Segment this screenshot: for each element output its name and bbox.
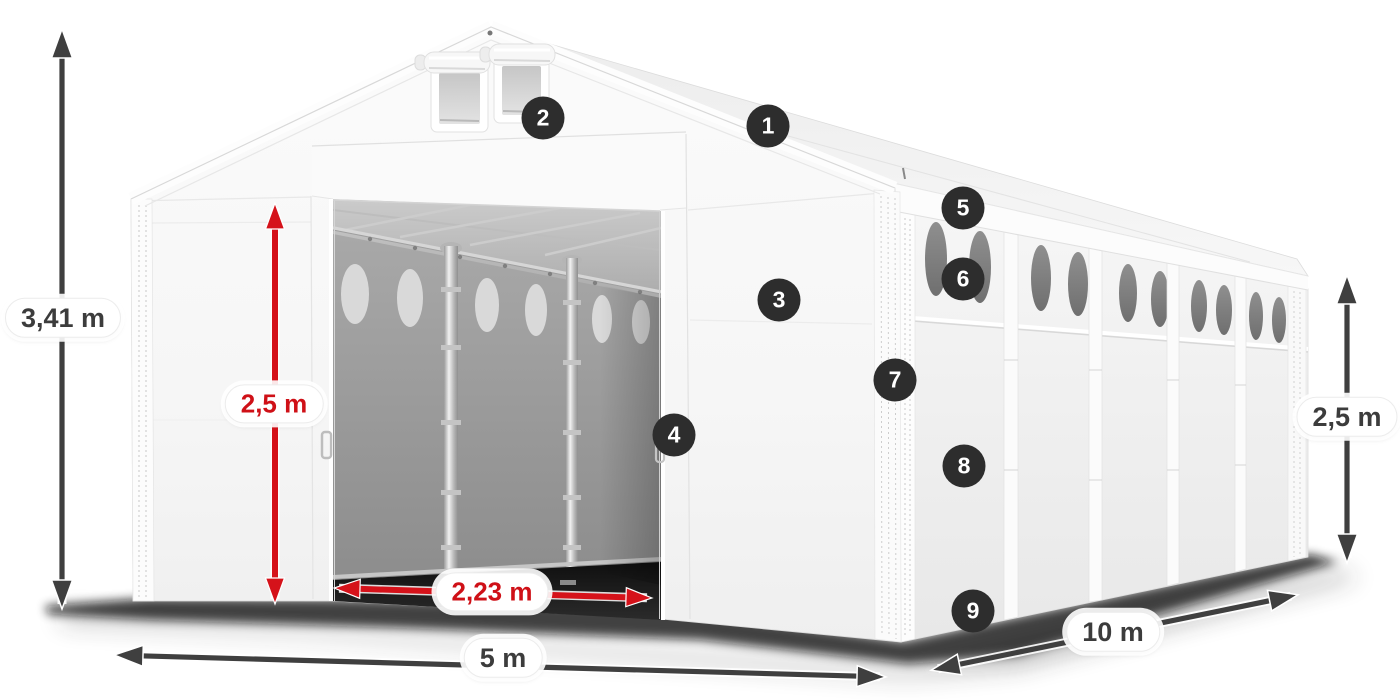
door-header-beam [312,132,686,210]
feature-marker-1: 1 [747,105,790,148]
feature-marker-7: 7 [874,359,917,402]
tent-interior [333,199,661,620]
dimension-label-door-height: 2,5 m [225,384,324,423]
dimension-label-front-width: 5 m [464,638,543,678]
feature-marker-5: 5 [942,187,985,230]
dimension-label-side-height: 2,5 m [1296,397,1397,437]
dimension-label-total-height: 3,41 m [5,298,121,338]
dimension-label-door-width: 2,23 m [436,572,549,611]
feature-marker-6: 6 [942,258,985,301]
feature-marker-9: 9 [952,590,995,633]
tent-illustration [0,0,1400,700]
feature-marker-2: 2 [522,97,565,140]
tent-dimension-diagram: 3,41 m 2,5 m 2,23 m 5 m 10 m 2,5 m 1 2 3… [0,0,1400,700]
feature-marker-3: 3 [758,279,801,322]
feature-marker-4: 4 [653,414,696,457]
feature-marker-8: 8 [943,445,986,488]
dimension-label-side-length: 10 m [1066,612,1160,652]
